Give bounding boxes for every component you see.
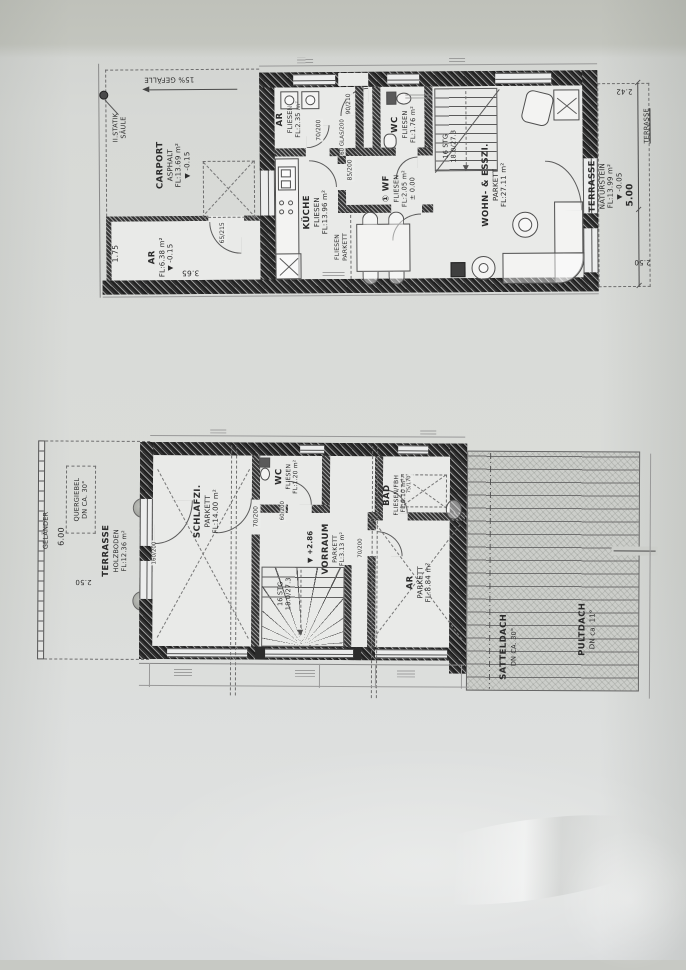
- stair-count: 16 STG: [276, 577, 284, 610]
- railing: [37, 440, 45, 659]
- label-quergiebel: QUERGIEBEL DN CA. 30°: [73, 478, 89, 522]
- room-title: TERRASSE: [101, 525, 112, 577]
- wall-east: [449, 444, 467, 674]
- dim-tick-v: [461, 665, 462, 689]
- upper-floor-plan: GELÄNDER QUERGIEBEL DN CA. 30° 6.00 2.50…: [0, 0, 686, 962]
- roof-type: SATTELDACH: [499, 614, 510, 680]
- room-area: FL:3.13 m²: [339, 523, 347, 574]
- wall-schlafzi-east-b: [251, 535, 260, 647]
- terrace-edge-bottom: [44, 658, 149, 660]
- door-label-schlafzi: 70/200: [253, 505, 260, 528]
- stair-rise-run: 18.0/27.3: [284, 577, 292, 610]
- door-label-ar: 70/200: [358, 537, 364, 558]
- dim-chain-bottom: [139, 685, 469, 688]
- window-bad: [398, 445, 428, 454]
- roof-type: PULTDACH: [577, 603, 588, 656]
- tiny-note: [397, 669, 415, 677]
- wall-stair-east: [344, 565, 351, 647]
- toilet-tank-icon: [259, 458, 270, 468]
- room-material: PARKETT: [203, 485, 212, 538]
- label-satteldach: SATTELDACH DN CA. 30°: [499, 614, 518, 680]
- floorplan-photo: { "photo": { "paper_color": "#d9dbd8", "…: [0, 0, 686, 960]
- door-label-terrace: 160/200: [152, 541, 158, 566]
- label-schlafzi: SCHLAFZI. PARKETT FL:14.00 m²: [193, 484, 221, 538]
- roof-dim-line: [649, 454, 651, 699]
- terrace-edge-top: [45, 440, 150, 442]
- washbasin-icon: [446, 500, 462, 520]
- room-title: BAD: [382, 475, 393, 516]
- wall-wc-east: [322, 456, 330, 512]
- room-title: SCHLAFZI.: [193, 484, 204, 537]
- quergiebel-line1: QUERGIEBEL: [73, 478, 81, 522]
- sill-line: [139, 663, 464, 666]
- bathtub-label: 75/170: [407, 475, 413, 495]
- tiny-note: [210, 428, 226, 433]
- window-wc: [300, 445, 324, 454]
- dim-terrace-length: 6.00: [57, 527, 67, 546]
- room-material: HOLZBODEN: [112, 525, 120, 577]
- label-terrasse-og: TERRASSE HOLZBODEN FL:12.36 m²: [101, 525, 128, 577]
- room-title: WC: [274, 459, 285, 493]
- wall-wc-south-b: [312, 505, 330, 513]
- toilet-bowl-icon: [260, 468, 270, 481]
- label-pultdach: PULTDACH DN ca. 11°: [577, 603, 597, 656]
- label-ar-og: AR PARKETT FL:8.84 m²: [405, 562, 433, 602]
- roof-pitch: DN ca. 11°: [588, 603, 597, 656]
- room-area: FL:8.84 m²: [425, 563, 434, 603]
- tiny-note: [295, 669, 315, 677]
- vorraum-level: ▼ +2.86: [306, 531, 315, 563]
- quergiebel-line2: DN CA. 30°: [81, 478, 89, 522]
- room-area: FL:6.10 m²: [400, 475, 408, 516]
- dim-tick-v: [319, 664, 320, 688]
- dim-tick-v: [149, 663, 150, 687]
- dim-terrace-width: 2.50: [75, 577, 91, 586]
- wall-bad-south-a: [368, 512, 383, 520]
- window-west: [139, 561, 152, 599]
- stair-arrow-icon: [297, 630, 303, 636]
- dim-chain-top: [150, 435, 465, 438]
- dim-tick-v: [375, 664, 376, 688]
- room-material: PARKETT: [416, 563, 425, 603]
- roof-pitch: DN CA. 30°: [509, 614, 517, 680]
- terrace-door-gap: [140, 499, 153, 546]
- room-area: FL:1.20 m²: [292, 460, 300, 494]
- roof-area: [466, 451, 640, 692]
- door-label-wc: 60/200: [280, 500, 286, 521]
- label-stairs: 16 STG 18.0/27.3: [276, 577, 292, 610]
- tiny-note: [420, 429, 436, 434]
- room-title: VORRAUM: [321, 523, 332, 574]
- tiny-note: [174, 668, 192, 676]
- window-south-3: [375, 649, 447, 658]
- window-south-2: [265, 649, 353, 658]
- room-area: FL:14.00 m²: [212, 485, 221, 538]
- label-wc-og: WC FLIESEN FL:1.20 m²: [274, 459, 300, 493]
- room-title: AR: [405, 562, 416, 602]
- room-area: FL:12.36 m²: [120, 525, 128, 577]
- label-bad: BAD FLIESEN/FBH FL:6.10 m²: [382, 475, 408, 516]
- railing-label: GELÄNDER: [42, 512, 50, 549]
- label-vorraum: VORRAUM PARKETT FL:3.13 m²: [321, 523, 347, 574]
